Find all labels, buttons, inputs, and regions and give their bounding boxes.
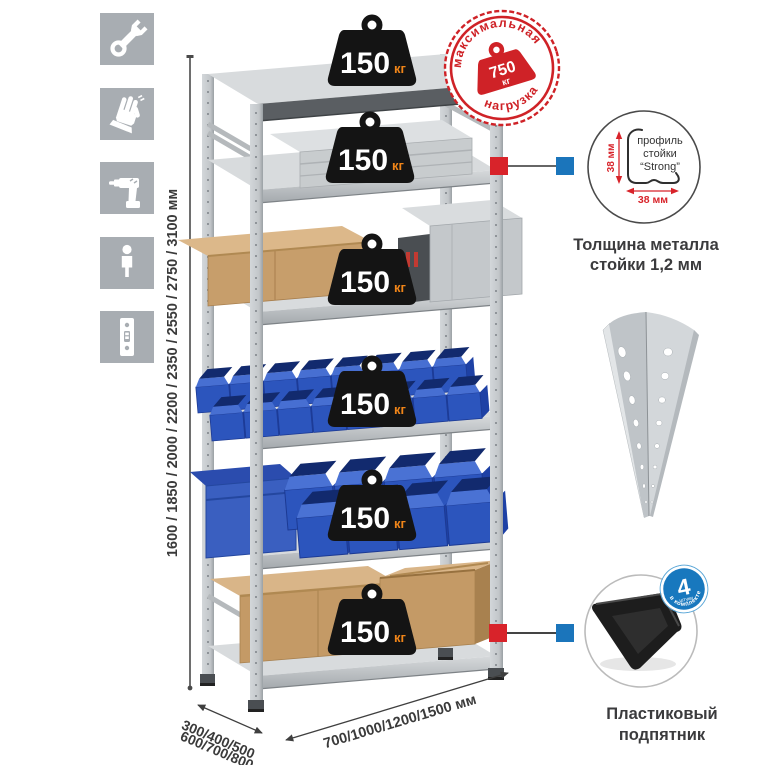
height-dimension: 1600 / 1850 / 2000 / 2200 / 2350 / 2550 … — [165, 55, 194, 690]
blue-marker-top — [556, 157, 574, 175]
foot-caption-1: Пластиковый — [606, 705, 717, 723]
profile-dim-vertical: 38 мм — [606, 144, 617, 173]
profile-caption-1: Толщина металла — [573, 236, 719, 254]
plastic-foot-detail: 4 штуки в комплекте Пластиковый подпятни… — [585, 561, 718, 744]
depth-dimension-bottom: 600/700/800 мм — [178, 728, 279, 765]
infographic-canvas: 1600 / 1850 / 2000 / 2200 / 2350 / 2550 … — [0, 0, 765, 765]
load-value: 150 — [340, 47, 390, 80]
rack-post-front-left — [250, 104, 263, 702]
load-value: 150 — [340, 266, 390, 299]
blue-tote — [190, 464, 296, 558]
tool-icon-column — [100, 13, 154, 363]
wrench-icon — [100, 13, 154, 65]
load-unit: кг — [394, 630, 407, 645]
rack-post-profile-icon — [100, 311, 154, 363]
profile-label-2: стойки — [643, 148, 677, 160]
load-value: 150 — [340, 388, 390, 421]
metal-angle-image — [603, 312, 699, 518]
rack-infographic: 1600 / 1850 / 2000 / 2200 / 2350 / 2550 … — [0, 0, 765, 765]
load-unit: кг — [394, 61, 407, 76]
load-unit: кг — [394, 280, 407, 295]
profile-label-3: “Strong” — [640, 161, 680, 173]
connector-top — [490, 157, 574, 175]
profile-detail: 38 мм 38 мм профиль стойки “Strong” Толщ… — [573, 111, 719, 274]
blue-marker-bottom — [556, 624, 574, 642]
profile-label-1: профиль — [637, 135, 683, 147]
load-unit: кг — [394, 516, 407, 531]
load-value: 150 — [340, 616, 390, 649]
person-icon — [100, 237, 154, 289]
max-load-stamp: максимальная нагрузка 750 кг — [431, 0, 573, 139]
load-badge-1: 150 кг — [328, 18, 416, 87]
height-dimension-label: 1600 / 1850 / 2000 / 2200 / 2350 / 2550 … — [165, 189, 181, 557]
red-marker-bottom — [489, 624, 507, 642]
connector-bottom — [489, 624, 574, 642]
red-marker-top — [490, 157, 508, 175]
load-unit: кг — [394, 402, 407, 417]
load-value: 150 — [340, 502, 390, 535]
drill-icon — [100, 162, 154, 214]
gloves-icon — [100, 88, 154, 140]
width-dimension: 700/1000/1200/1500 мм — [286, 673, 508, 752]
load-value: 150 — [338, 144, 388, 177]
profile-dim-horizontal: 38 мм — [638, 194, 668, 206]
profile-caption-2: стойки 1,2 мм — [590, 256, 702, 274]
foot-caption-2: подпятник — [619, 726, 706, 744]
metal-cases-shelf3 — [398, 200, 522, 304]
load-unit: кг — [392, 158, 405, 173]
depth-dimension: 300/400/500 600/700/800 мм — [178, 705, 279, 765]
